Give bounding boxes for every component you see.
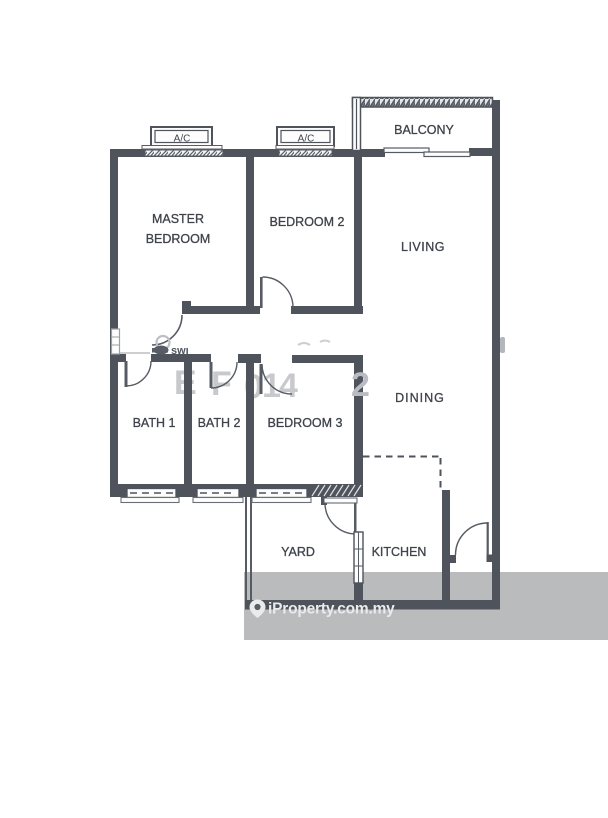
svg-text:2: 2 bbox=[351, 366, 370, 404]
svg-text:iProperty.com.my: iProperty.com.my bbox=[268, 601, 395, 618]
svg-text:BEDROOM 3: BEDROOM 3 bbox=[267, 416, 342, 430]
svg-text:4: 4 bbox=[279, 367, 298, 405]
svg-text:BALCONY: BALCONY bbox=[394, 123, 454, 137]
svg-text:BEDROOM: BEDROOM bbox=[146, 232, 211, 246]
svg-text:LIVING: LIVING bbox=[401, 240, 445, 254]
svg-text:DINING: DINING bbox=[395, 391, 445, 405]
svg-text:A/C: A/C bbox=[298, 134, 315, 145]
svg-text:F: F bbox=[211, 365, 232, 403]
svg-text:KITCHEN: KITCHEN bbox=[372, 545, 427, 559]
svg-text:BATH 1: BATH 1 bbox=[133, 416, 176, 430]
svg-text:MASTER: MASTER bbox=[152, 212, 204, 226]
svg-text:BATH 2: BATH 2 bbox=[198, 416, 241, 430]
svg-text:BEDROOM 2: BEDROOM 2 bbox=[269, 215, 344, 229]
svg-text:A/C: A/C bbox=[174, 134, 191, 145]
svg-text:YARD: YARD bbox=[281, 545, 315, 559]
svg-text:şwı: şwı bbox=[171, 345, 189, 357]
